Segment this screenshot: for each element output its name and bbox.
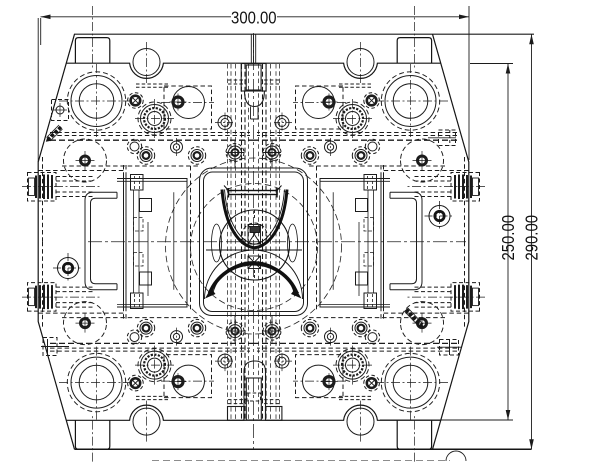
svg-text:290.00: 290.00 [522, 215, 541, 260]
svg-text:250.00: 250.00 [499, 215, 518, 260]
svg-text:300.00: 300.00 [231, 8, 276, 27]
